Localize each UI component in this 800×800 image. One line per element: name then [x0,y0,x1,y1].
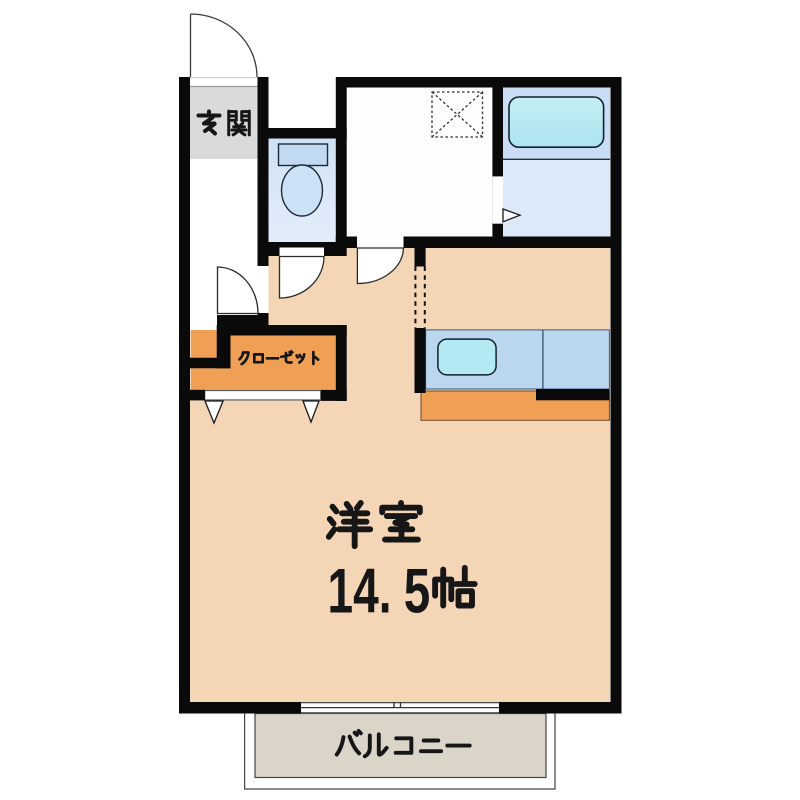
svg-text:5: 5 [404,557,431,627]
svg-text:14.: 14. [328,557,392,627]
